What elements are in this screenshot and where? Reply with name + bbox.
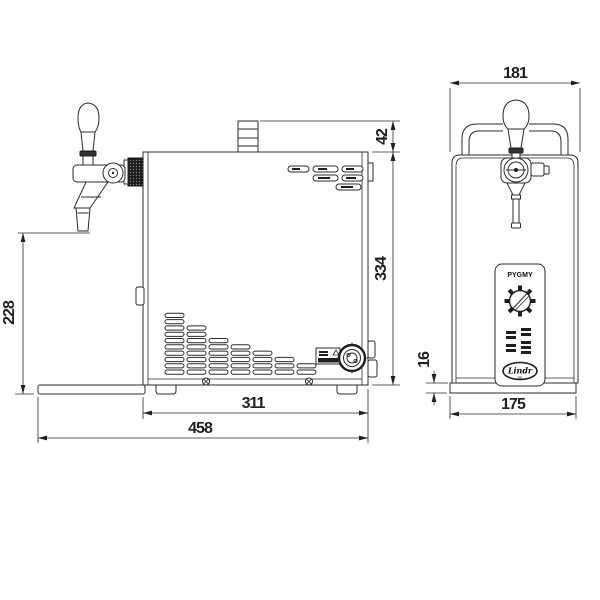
brand-logo: Lindr cz: [503, 363, 537, 380]
spout-front: [513, 199, 519, 223]
front-clip: [136, 287, 144, 305]
dim-42: 42: [260, 121, 400, 152]
model-label: PYGMY: [507, 272, 533, 279]
tap-spout-side: [74, 182, 108, 231]
technical-drawing-page: 228 42 334 311 458: [0, 0, 600, 600]
tap-handle-front: [503, 100, 529, 159]
dim-label-181: 181: [503, 65, 528, 82]
rating-plate: [316, 348, 340, 364]
dim-16: 16: [416, 351, 448, 405]
dim-label-458: 458: [188, 420, 213, 437]
side-fitting: [531, 163, 544, 176]
dim-311: 311: [143, 389, 368, 419]
dim-228: 228: [1, 233, 90, 394]
control-panel: PYGMY Lindr cz: [495, 264, 545, 386]
dim-label-42: 42: [374, 128, 391, 145]
front-view: PYGMY Lindr cz: [416, 65, 580, 419]
dim-label-16: 16: [416, 351, 433, 368]
drip-tray: [38, 385, 145, 394]
rear-tab-bottom: [368, 360, 377, 377]
rear-tab-mid: [368, 341, 375, 358]
tap-handle-side: [78, 103, 99, 165]
screw-icon: [306, 378, 313, 385]
foot-right: [337, 385, 357, 394]
dim-label-334: 334: [373, 256, 390, 281]
rear-tab-top: [368, 163, 373, 181]
handle-post: [238, 121, 258, 152]
tap-assembly-side: [73, 103, 143, 231]
dim-334: 334: [372, 152, 400, 385]
brand-sub-label: cz: [518, 376, 522, 380]
dim-label-175: 175: [501, 396, 526, 413]
dim-458: 458: [38, 397, 368, 443]
dim-label-228: 228: [1, 300, 18, 325]
dim-175: 175: [450, 396, 576, 419]
side-view: 228 42 334 311 458: [1, 103, 400, 443]
knurled-coupling: [128, 158, 143, 186]
brand-label: Lindr: [507, 366, 533, 376]
dim-label-311: 311: [242, 395, 266, 412]
foot-left: [156, 385, 176, 394]
screw-icon: [203, 378, 210, 385]
technical-drawing-svg: 228 42 334 311 458: [0, 0, 600, 600]
